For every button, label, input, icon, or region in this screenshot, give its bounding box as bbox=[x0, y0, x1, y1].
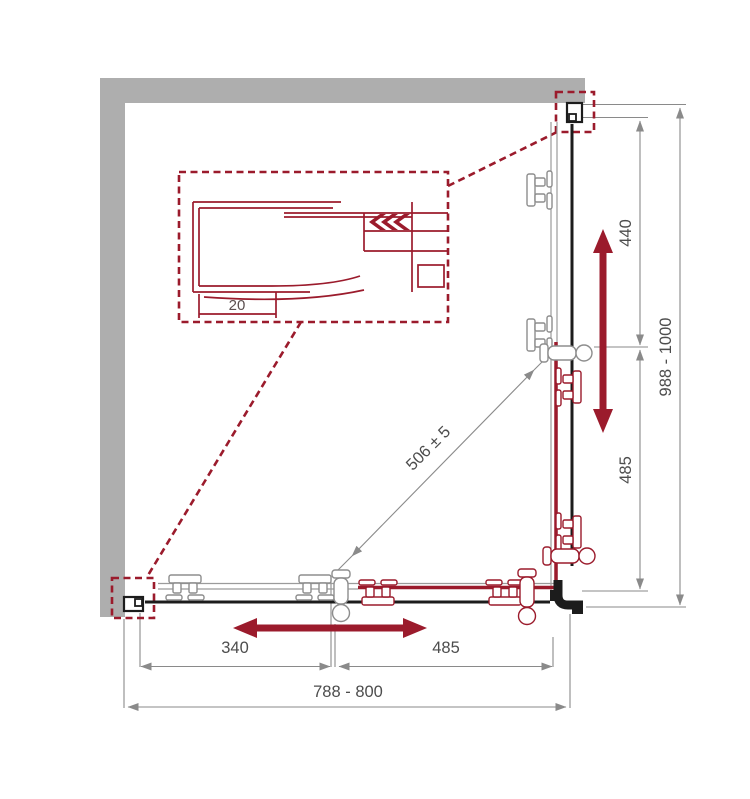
right-door-handle bbox=[540, 344, 592, 362]
dim-bottom-right: 485 bbox=[339, 639, 552, 667]
roller-bracket bbox=[296, 575, 334, 600]
dim-bottom-left: 340 bbox=[141, 639, 330, 667]
roller-bracket bbox=[166, 575, 204, 600]
detail-frame bbox=[179, 172, 448, 322]
dim-label-right-overall: 988 - 1000 bbox=[657, 318, 675, 397]
detail-dim-20: 20 bbox=[199, 292, 276, 318]
detail-view-profile-section: 20 bbox=[193, 202, 448, 318]
dim-diagonal: 506 ± 5 bbox=[338, 356, 548, 570]
shower-enclosure-diagram: 440 485 988 - 1000 340 485 788 - 800 506… bbox=[0, 0, 750, 799]
bottom-door-assembly bbox=[124, 569, 556, 625]
bottom-door-handle bbox=[332, 570, 350, 622]
dim-label-bottom-overall: 788 - 800 bbox=[313, 683, 383, 701]
dim-bottom-overall: 788 - 800 bbox=[128, 683, 566, 707]
detail-callout: 20 bbox=[147, 132, 557, 577]
dim-label-right-upper: 440 bbox=[617, 219, 635, 247]
dim-label-profile-width: 20 bbox=[229, 297, 246, 314]
right-door-assembly bbox=[527, 103, 595, 599]
dim-right-overall: 988 - 1000 bbox=[657, 108, 680, 605]
callout-leader-bottom bbox=[147, 322, 301, 577]
roller-bracket bbox=[527, 171, 552, 209]
room-walls bbox=[100, 78, 585, 617]
dim-label-bottom-right: 485 bbox=[432, 639, 460, 657]
dim-right-lower: 485 bbox=[617, 350, 640, 589]
wall-profile-bottom bbox=[124, 597, 143, 611]
roller-bracket-red bbox=[556, 513, 581, 551]
slide-arrow-horizontal bbox=[233, 618, 427, 638]
dim-label-right-lower: 485 bbox=[617, 456, 635, 484]
dim-right-upper: 440 bbox=[617, 121, 640, 345]
roller-bracket-red bbox=[556, 368, 581, 406]
slide-arrow-vertical bbox=[593, 229, 613, 433]
technical-drawing-page: 440 485 988 - 1000 340 485 788 - 800 506… bbox=[0, 0, 750, 799]
dim-label-diagonal: 506 ± 5 bbox=[403, 423, 455, 475]
right-door-handle-red bbox=[543, 547, 595, 565]
wall-profile-top bbox=[567, 103, 582, 122]
dim-label-bottom-left: 340 bbox=[221, 639, 249, 657]
bottom-door-handle-red bbox=[518, 569, 536, 625]
corner-bracket bbox=[550, 580, 583, 614]
